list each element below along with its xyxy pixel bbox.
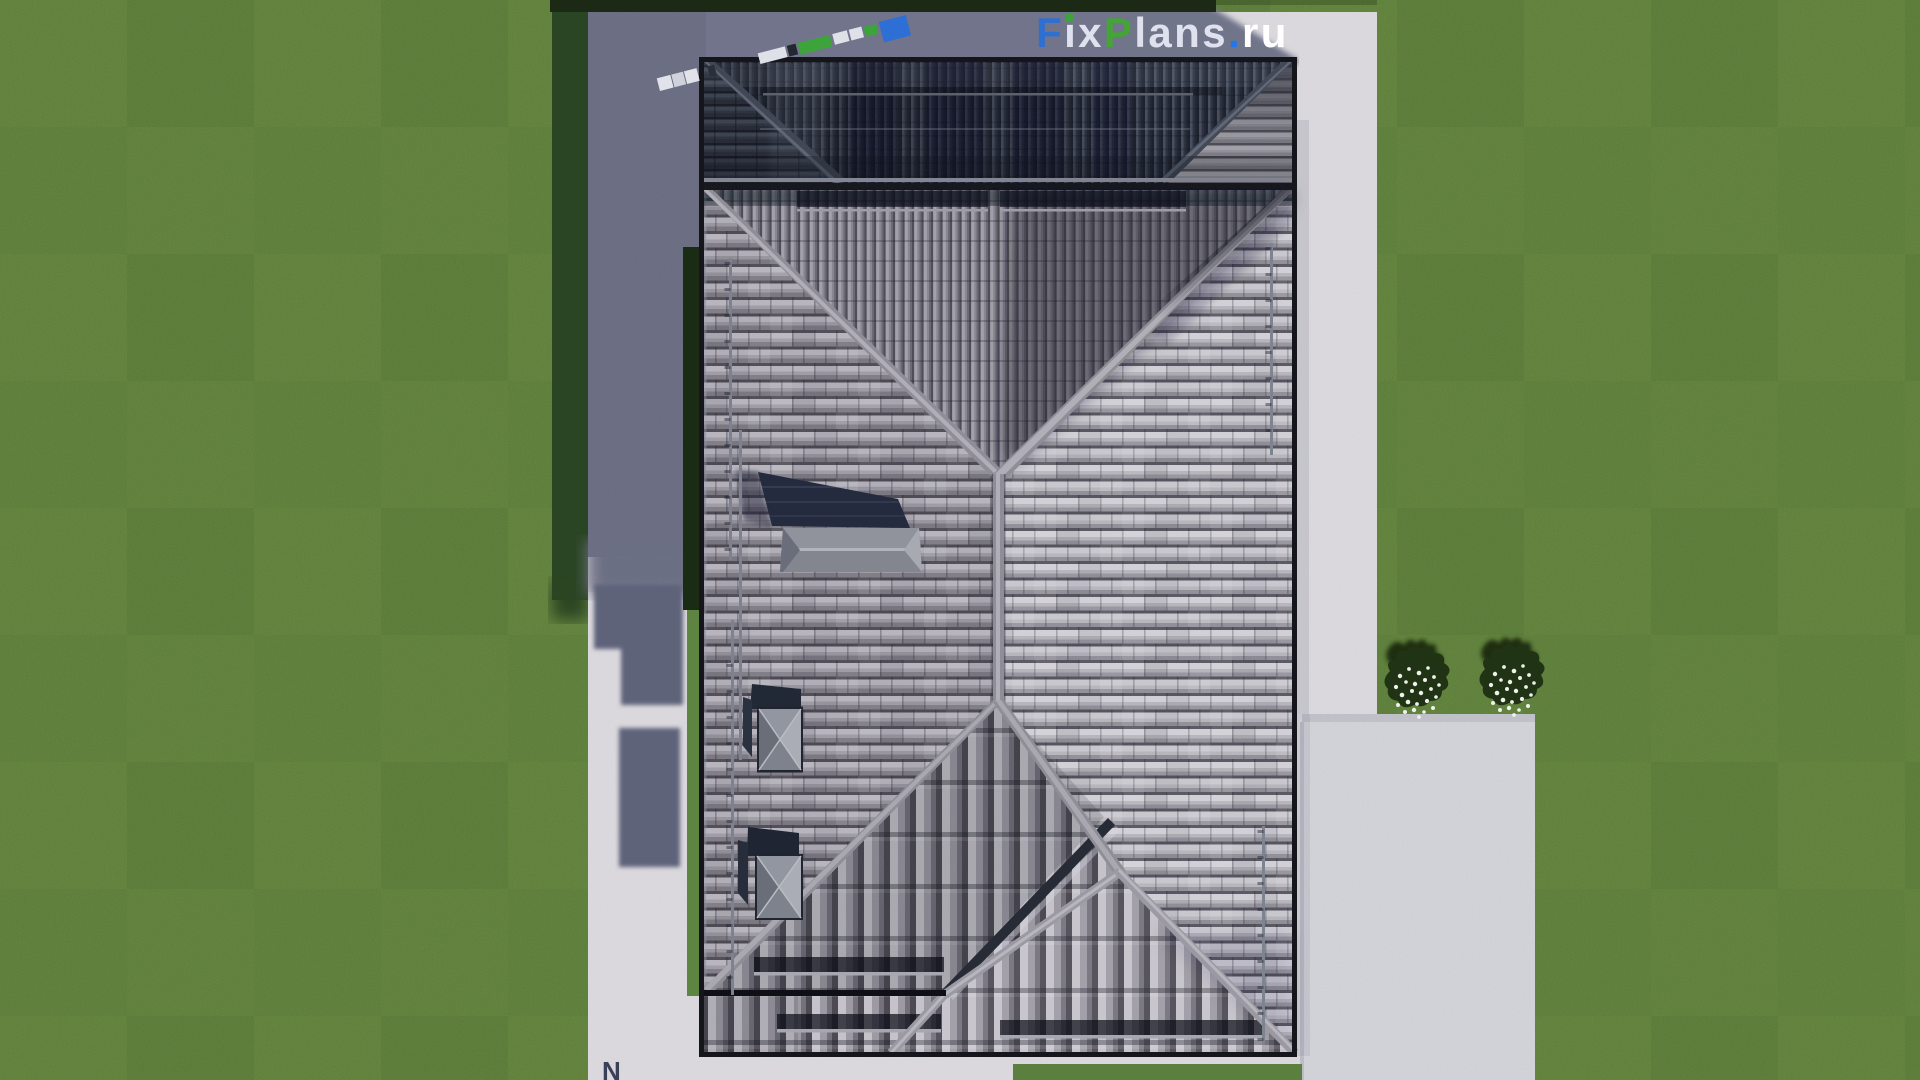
svg-text:N: N	[602, 1056, 621, 1080]
